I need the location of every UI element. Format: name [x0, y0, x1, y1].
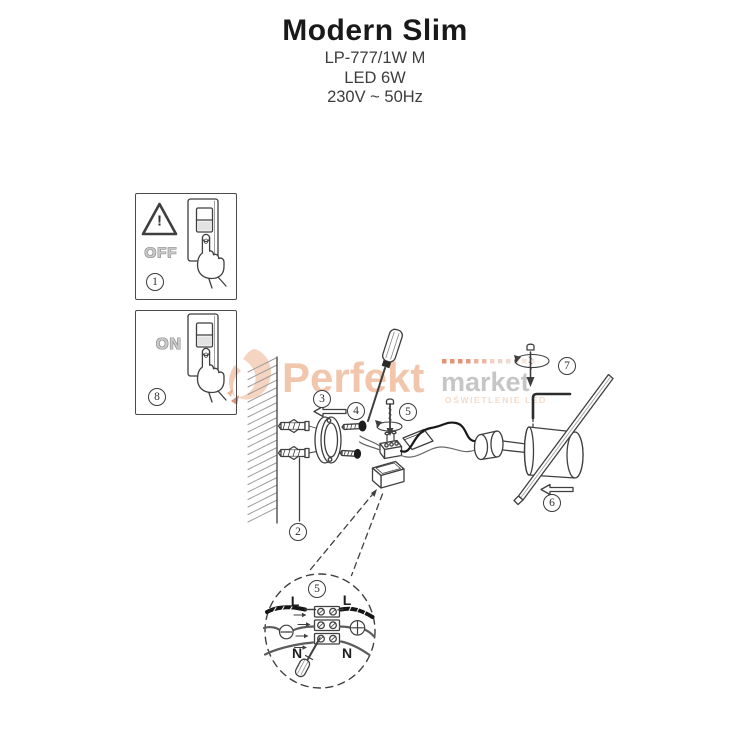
step-number-1: 1: [146, 273, 164, 291]
step-number-5: 5: [399, 403, 417, 421]
on-label: ON: [156, 336, 182, 354]
step-number-4: 4: [347, 402, 365, 420]
product-lamp-type: LED 6W: [0, 70, 750, 88]
detail-step-number-5: 5: [308, 580, 326, 598]
live-label-left: L: [291, 593, 300, 609]
step-number-7: 7: [558, 357, 576, 375]
step-number-8: 8: [148, 388, 166, 406]
warning-exclamation: !: [157, 213, 162, 230]
step-number-2: 2: [289, 523, 307, 541]
step-number-6: 6: [543, 494, 561, 512]
neutral-label-left: N: [292, 645, 302, 661]
product-power: 230V ~ 50Hz: [0, 89, 750, 107]
step-number-3: 3: [313, 390, 331, 408]
neutral-label-right: N: [342, 645, 352, 661]
product-model: LP-777/1W M: [0, 50, 750, 68]
product-title: Modern Slim: [0, 14, 750, 48]
off-label: OFF: [145, 245, 178, 262]
live-label-right: L: [343, 592, 352, 608]
instruction-sheet: Perfekt market OŚWIETLENIE LED: [0, 0, 750, 750]
header: Modern Slim LP-777/1W M LED 6W 230V ~ 50…: [0, 14, 750, 107]
